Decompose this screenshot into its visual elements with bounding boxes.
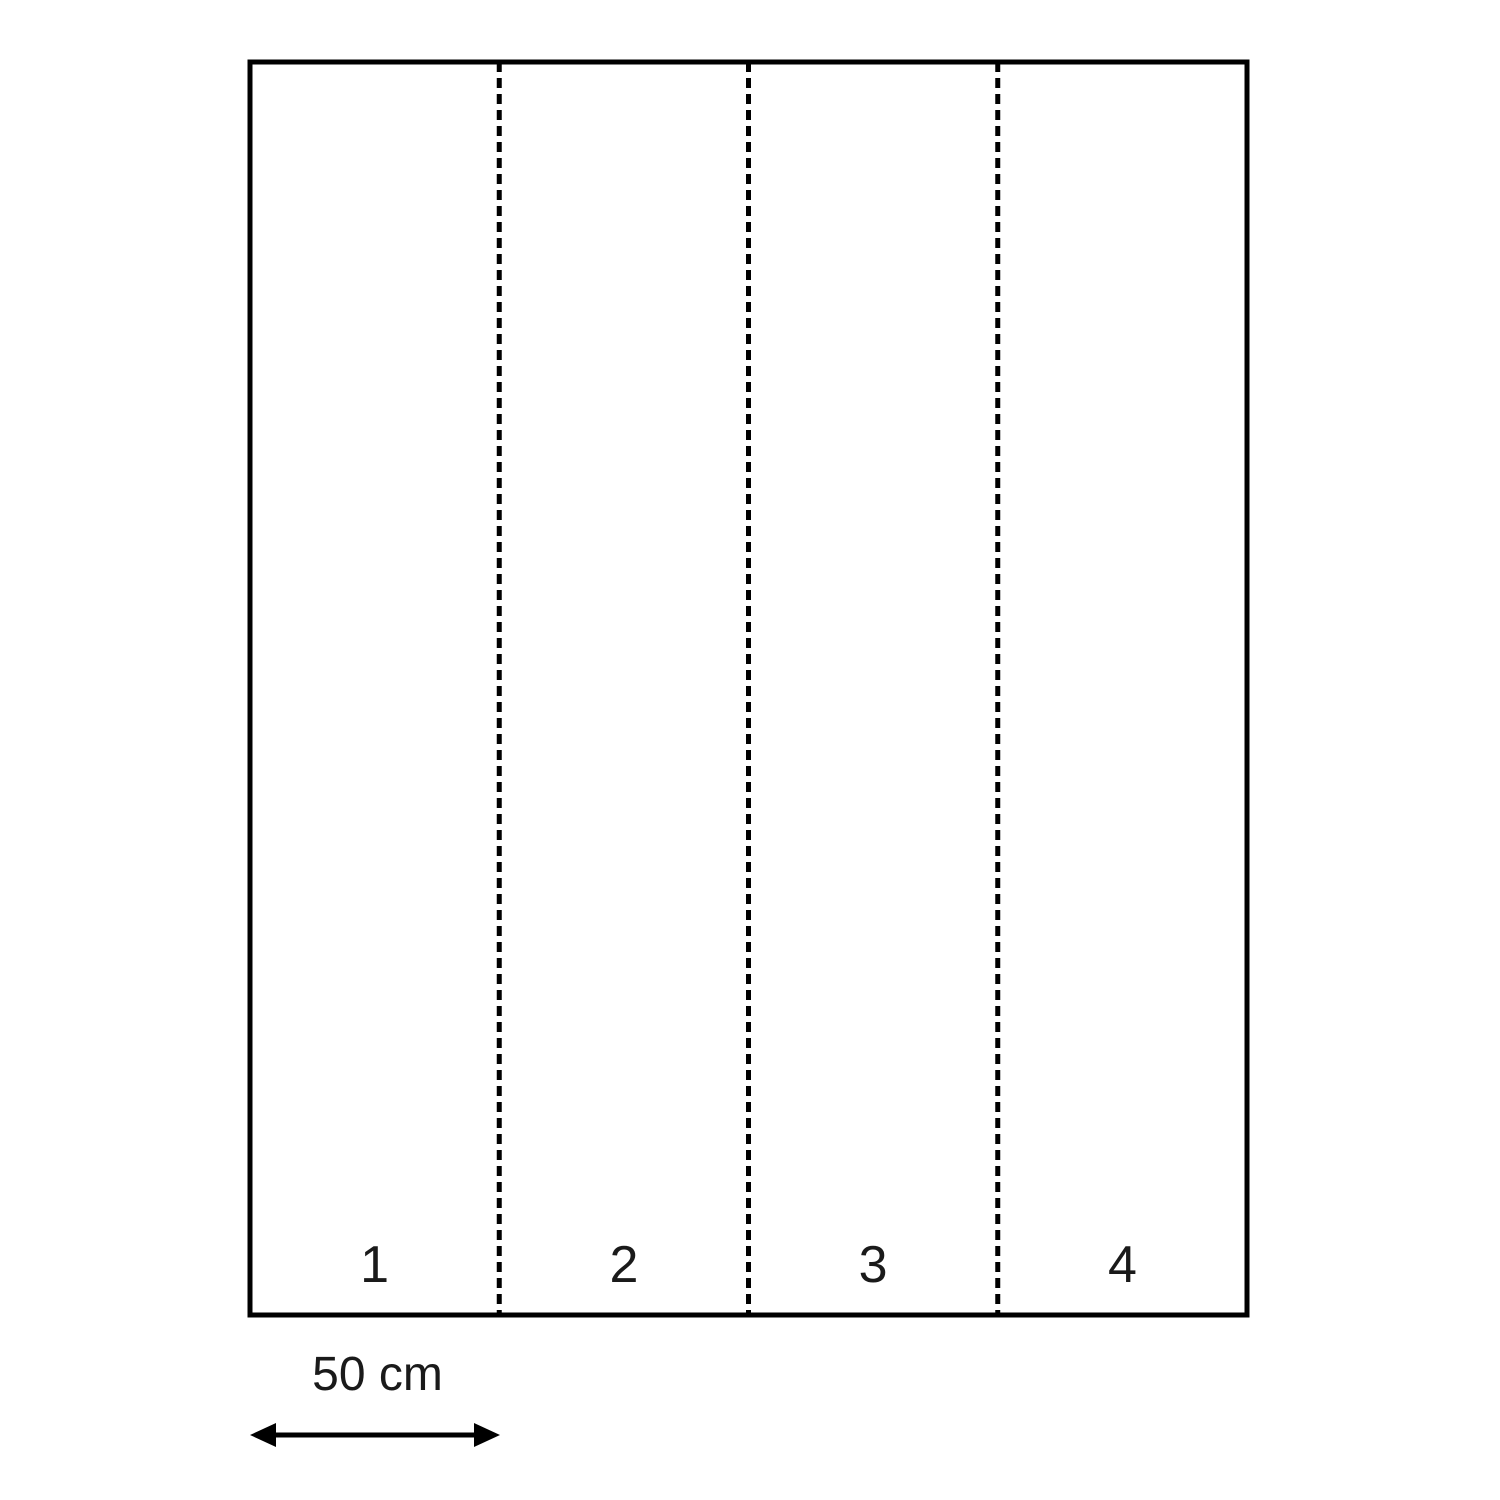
strip-label-2: 2	[609, 1236, 638, 1294]
strip-label-3: 3	[859, 1236, 888, 1294]
strip-diagram: 1 2 3 4 50 cm	[0, 0, 1500, 1500]
diagram-canvas: 1 2 3 4 50 cm	[0, 0, 1500, 1500]
scale-label: 50 cm	[312, 1348, 443, 1401]
dimension-arrow	[250, 1423, 500, 1447]
arrowhead-left-icon	[250, 1423, 276, 1447]
strip-label-4: 4	[1108, 1236, 1137, 1294]
arrowhead-right-icon	[474, 1423, 500, 1447]
strip-label-1: 1	[360, 1236, 389, 1294]
